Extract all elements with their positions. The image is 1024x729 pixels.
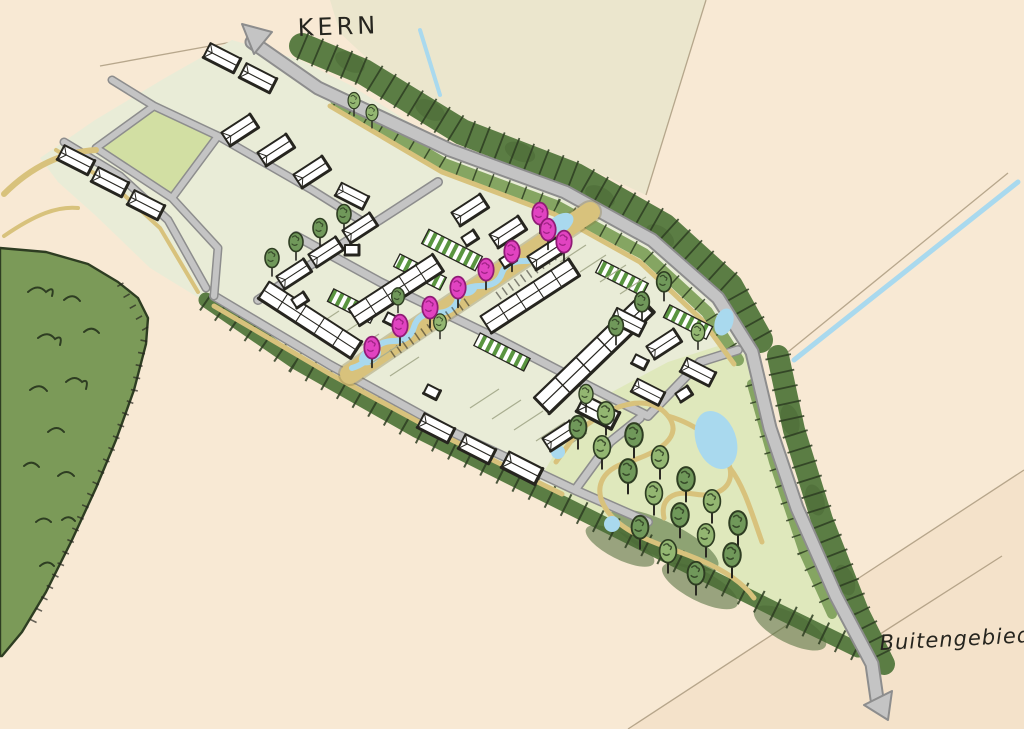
sketch-canvas: KERN Buitengebied: [0, 0, 1024, 729]
small-pond: [604, 516, 620, 532]
kern-label: KERN: [297, 11, 379, 42]
shed: [345, 245, 359, 255]
site-plan-sketch: KERN Buitengebied: [0, 0, 1024, 729]
